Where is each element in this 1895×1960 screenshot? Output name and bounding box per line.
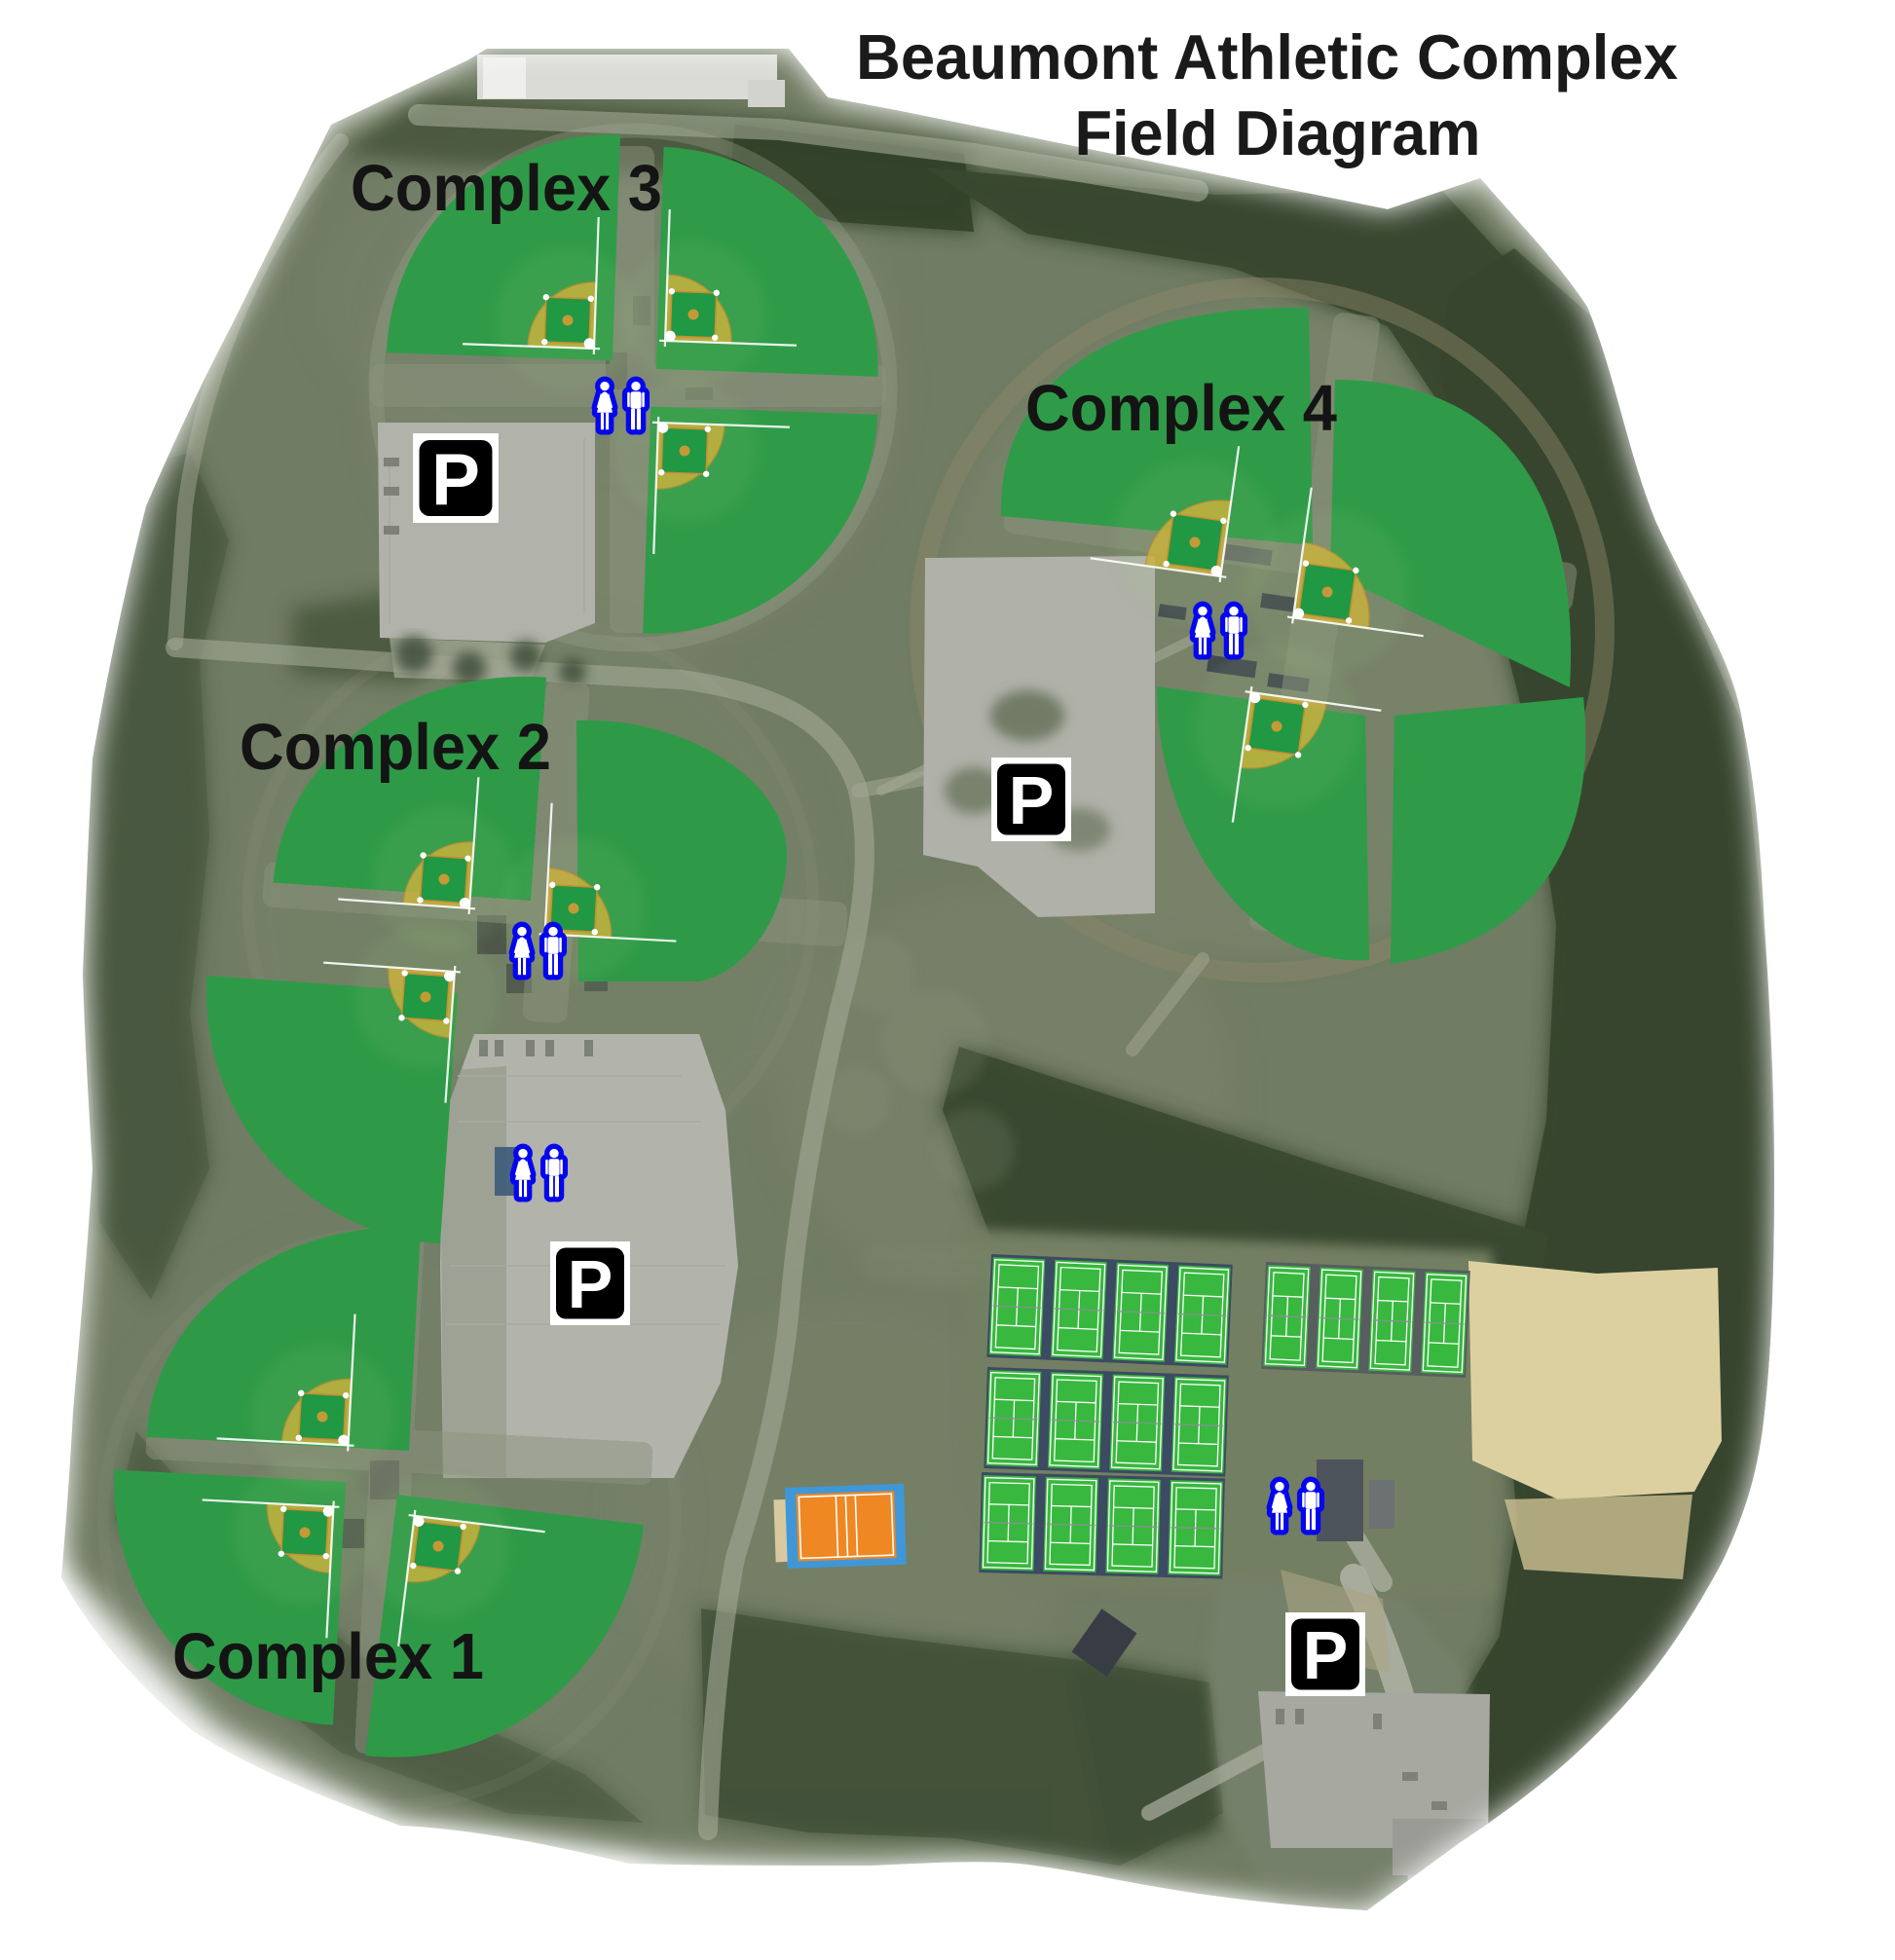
svg-text:Beaumont Athletic Complex: Beaumont Athletic Complex: [856, 21, 1678, 92]
svg-text:Complex 4: Complex 4: [1025, 372, 1337, 445]
svg-text:Field Diagram: Field Diagram: [1075, 97, 1481, 168]
svg-text:Complex 2: Complex 2: [240, 711, 551, 784]
svg-text:Complex 3: Complex 3: [351, 152, 662, 225]
svg-text:Complex 1: Complex 1: [172, 1620, 484, 1693]
